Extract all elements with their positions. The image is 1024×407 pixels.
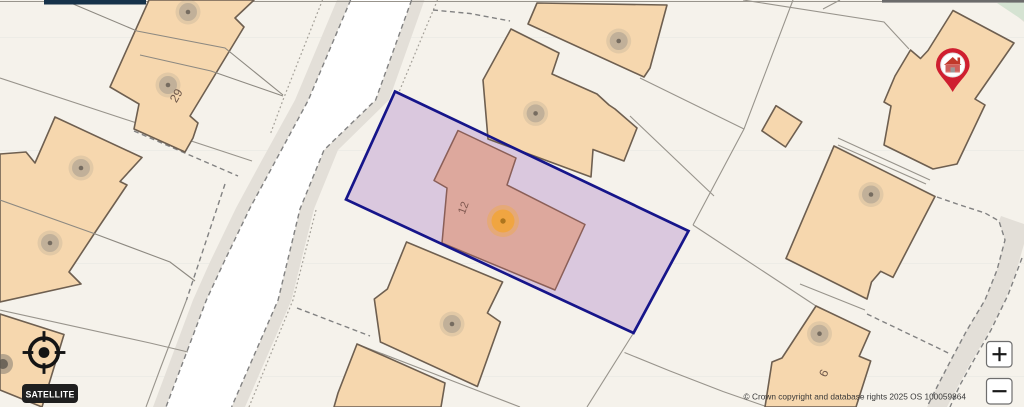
- svg-text:SATELLITE: SATELLITE: [25, 390, 74, 400]
- svg-text:© Crown copyright and database: © Crown copyright and database rights 20…: [744, 392, 967, 402]
